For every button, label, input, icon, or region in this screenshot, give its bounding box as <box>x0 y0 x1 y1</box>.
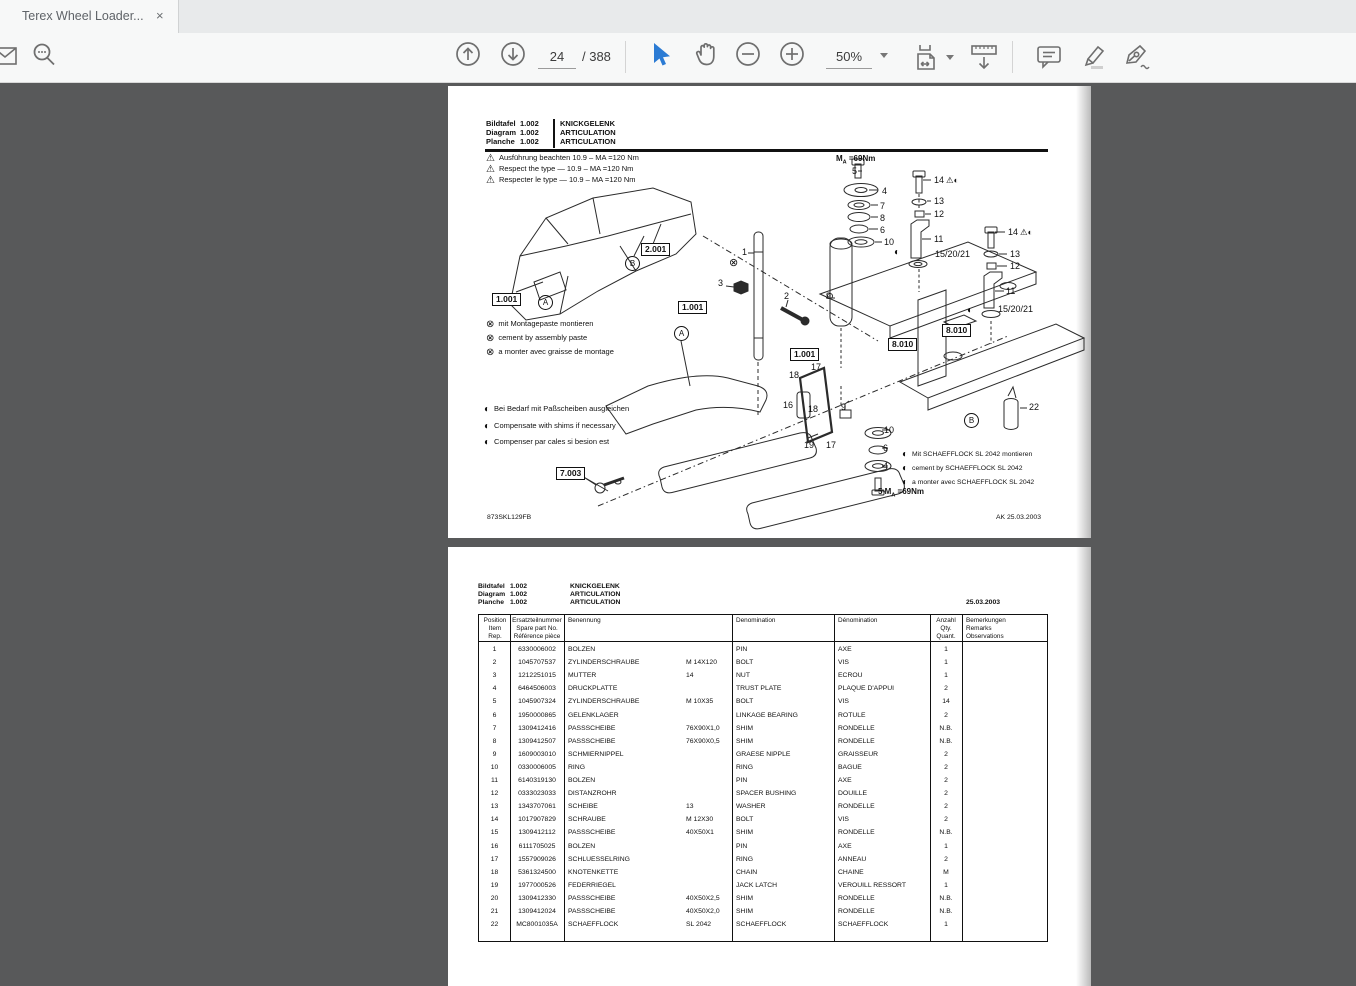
table-row: 191977000526FEDERRIEGELJACK LATCHVEROUIL… <box>479 879 1047 892</box>
diagram-callout: 18 <box>789 371 799 380</box>
diagram-ref-box: 1.001 <box>790 348 819 361</box>
table-cell: BOLZEN <box>564 840 686 853</box>
table-cell: NUT <box>732 669 838 682</box>
half-circle-icon: ◐ <box>484 437 490 448</box>
table-cell: BOLT <box>732 695 838 708</box>
table-cell: SCHMIERNIPPEL <box>564 748 686 761</box>
diagram-callout: 11 <box>1006 287 1015 296</box>
table-cell: 13 <box>479 800 510 813</box>
table-cell: 6111705025 <box>510 840 564 853</box>
half-circle-icon: ◐ <box>902 449 908 460</box>
table-cell: SCHLUESSELRING <box>564 853 686 866</box>
table-cell: 6464506003 <box>510 682 564 695</box>
diagram-ref-box: 1.001 <box>678 301 707 314</box>
table-cell: 1977000526 <box>510 879 564 892</box>
diagram-callout: 10 <box>884 238 894 247</box>
table-cell: 1557909026 <box>510 853 564 866</box>
table-cell: 1309412024 <box>510 905 564 918</box>
diagram-callout: 19 <box>804 441 814 450</box>
table-cell: RING <box>564 761 686 774</box>
table-cell: SCHAEFFLOCK <box>834 918 934 931</box>
table-cell: 1 <box>930 840 962 853</box>
diagram-callout: 1 <box>742 248 747 257</box>
table-cell: 20 <box>479 892 510 905</box>
col-header-position: PositionItemRep. <box>482 617 508 641</box>
table-cell: 2 <box>930 774 962 787</box>
table-row: 131343707061SCHEIBE13WASHERRONDELLE2 <box>479 800 1047 813</box>
table-cell: PIN <box>732 774 838 787</box>
comment-icon[interactable] <box>1034 42 1064 72</box>
table-row: 31212251015MUTTER14NUTECROU1 <box>479 669 1047 682</box>
table-cell: RONDELLE <box>834 735 934 748</box>
table-cell: 6 <box>479 709 510 722</box>
highlighter-icon[interactable] <box>1078 42 1108 72</box>
zoom-level-input[interactable]: 50% <box>826 46 872 69</box>
table-cell: VIS <box>834 656 934 669</box>
col-header-denomination: Denomination <box>736 617 775 625</box>
table-cell: PLAQUE D'APPUI <box>834 682 934 695</box>
diagram-callout: 5 <box>852 167 857 176</box>
table-cell: SL 2042 <box>682 918 736 931</box>
search-icon[interactable] <box>30 41 58 69</box>
page-number-input[interactable]: 24 <box>538 46 576 69</box>
table-cell: CHAIN <box>732 866 838 879</box>
pdf-page-2: Bildtafel Diagram Planche 1.002 1.002 1.… <box>448 547 1091 986</box>
table-cell: 4 <box>479 682 510 695</box>
diagram-ref-circle: B <box>625 256 640 271</box>
diagram-callout: ◐ <box>967 306 973 316</box>
fit-page-caret-icon[interactable] <box>946 55 954 60</box>
table-cell: 1 <box>930 669 962 682</box>
table-cell: 1 <box>930 879 962 892</box>
table-row: 120333023033DISTANZROHRSPACER BUSHINGDOU… <box>479 787 1047 800</box>
diagram-callout: 6 <box>880 226 885 235</box>
table-cell: M 14X120 <box>682 656 736 669</box>
table-cell: 1045907324 <box>510 695 564 708</box>
diagram-callout: 8 <box>880 214 885 223</box>
table-cell: PASSSCHEIBE <box>564 892 686 905</box>
table-cell: 2 <box>930 761 962 774</box>
table-cell: SHIM <box>732 735 838 748</box>
table-cell: 1309412330 <box>510 892 564 905</box>
zoom-in-button[interactable] <box>778 40 806 68</box>
parts-table: PositionItemRep. ErsatzteilnummerSpare p… <box>478 614 1048 942</box>
diagram-callout: 15/20/21 <box>998 305 1033 314</box>
diagram-callout: 4 <box>882 187 887 196</box>
table-cell: MUTTER <box>564 669 686 682</box>
table-cell: 1 <box>930 918 962 931</box>
table-row: 46464506003DRUCKPLATTETRUST PLATEPLAQUE … <box>479 682 1047 695</box>
table-cell: LINKAGE BEARING <box>732 709 838 722</box>
diagram-ref-box: 1.001 <box>492 293 521 306</box>
table-cell: PASSSCHEIBE <box>564 735 686 748</box>
table-cell: M 10X35 <box>682 695 736 708</box>
table-cell: 7 <box>479 722 510 735</box>
fit-page-icon[interactable] <box>912 41 944 73</box>
toolbar-divider <box>1012 41 1013 73</box>
table-cell: ANNEAU <box>834 853 934 866</box>
table-cell: PASSSCHEIBE <box>564 722 686 735</box>
table-cell: SCHRAUBE <box>564 813 686 826</box>
torque-label-top: MA =69Nm <box>836 154 875 166</box>
table-cell: ECROU <box>834 669 934 682</box>
table-cell: 13 <box>682 800 736 813</box>
table-cell: 19 <box>479 879 510 892</box>
table-cell: 2 <box>930 709 962 722</box>
document-tab[interactable]: Terex Wheel Loader... × <box>0 0 179 33</box>
table-row: 21045707537ZYLINDERSCHRAUBEM 14X120BOLTV… <box>479 656 1047 669</box>
diagram-callout: 17 <box>826 441 836 450</box>
table-cell: 17 <box>479 853 510 866</box>
table-row: 201309412330PASSSCHEIBE40X50X2,5SHIMROND… <box>479 892 1047 905</box>
table-cell: 76X90X0,5 <box>682 735 736 748</box>
table-cell: RONDELLE <box>834 722 934 735</box>
table-cell: 0330006005 <box>510 761 564 774</box>
zoom-out-button[interactable] <box>734 40 762 68</box>
table-cell: 9 <box>479 748 510 761</box>
diagram-callout: 10 <box>884 426 894 435</box>
panel-icon[interactable] <box>0 43 18 69</box>
table-cell: JACK LATCH <box>732 879 838 892</box>
toolbar-divider <box>625 41 626 73</box>
diagram-callout: 13 <box>934 197 944 206</box>
diagram-callout: 12 <box>934 210 944 219</box>
diagram-ref-circle: B <box>964 413 979 428</box>
table-cell: SCHAEFFLOCK <box>564 918 686 931</box>
diagram-ref-circle: A <box>674 326 689 341</box>
table-cell: SCHAEFFLOCK <box>732 918 838 931</box>
table-cell: SHIM <box>732 826 838 839</box>
page-down-button[interactable] <box>499 40 527 68</box>
table-cell: BOLZEN <box>564 774 686 787</box>
table-cell: 1017907829 <box>510 813 564 826</box>
table-cell: 11 <box>479 774 510 787</box>
table-row: 171557909026SCHLUESSELRINGRINGANNEAU2 <box>479 853 1047 866</box>
table-cell: 10 <box>479 761 510 774</box>
table-cell: 8 <box>479 735 510 748</box>
diagram-callout: 14⚠◐ <box>934 176 959 185</box>
diagram-callout: 12 <box>1010 262 1020 271</box>
diagram-callout: 7 <box>880 202 885 211</box>
diagram-ref-box: 8.010 <box>942 324 971 337</box>
page-total-label: / 388 <box>582 46 611 68</box>
table-cell: TRUST PLATE <box>732 682 838 695</box>
table-cell: 6330006002 <box>510 643 564 656</box>
diagram-callout: 17 <box>811 363 821 372</box>
table-cell: 2 <box>479 656 510 669</box>
table-cell: RING <box>732 761 838 774</box>
table-cell: SHIM <box>732 722 838 735</box>
diagram-callout: 13 <box>1010 250 1020 259</box>
table-cell: 2 <box>930 748 962 761</box>
table-cell: AXE <box>834 774 934 787</box>
col-header-part-no: ErsatzteilnummerSpare part No.Référence … <box>512 617 562 641</box>
table-cell: 2 <box>930 682 962 695</box>
fit-width-ruler-icon[interactable] <box>968 41 1000 73</box>
col-header-remarks: BemerkungenRemarksObservations <box>966 617 1006 641</box>
table-row: 166111705025BOLZENPINAXE1 <box>479 840 1047 853</box>
table-row: 141017907829SCHRAUBEM 12X30BOLTVIS2 <box>479 813 1047 826</box>
table-cell: 2 <box>930 853 962 866</box>
x-circle-icon: ⊗ <box>486 347 494 358</box>
x-circle-icon: ⊗ <box>486 333 494 344</box>
tab-close-icon[interactable]: × <box>156 8 164 23</box>
table-cell: GRAISSEUR <box>834 748 934 761</box>
table-cell: RONDELLE <box>834 905 934 918</box>
table-cell: CHAINE <box>834 866 934 879</box>
diagram-callout: 2 <box>784 292 789 301</box>
table-cell: 40X50X1 <box>682 826 736 839</box>
warning-and-glue-icons: ⚠◐ <box>946 175 959 185</box>
table-cell: 5361324500 <box>510 866 564 879</box>
diagram-callout: 16 <box>783 401 793 410</box>
diagram-ref-box: 7.003 <box>556 467 585 480</box>
table-cell: 2 <box>930 787 962 800</box>
table-cell: 14 <box>479 813 510 826</box>
pdf-viewer-window: Terex Wheel Loader... × 24 / 3 <box>0 0 1356 986</box>
table-cell: 14 <box>682 669 736 682</box>
select-tool-cursor-icon[interactable] <box>650 41 674 69</box>
table-row: 22MC8001035ASCHAEFFLOCKSL 2042SCHAEFFLOC… <box>479 918 1047 931</box>
table-cell: SHIM <box>732 892 838 905</box>
table-row: 51045907324ZYLINDERSCHRAUBEM 10X35BOLTVI… <box>479 695 1047 708</box>
table-cell: 1309412416 <box>510 722 564 735</box>
diagram-callout: 22 <box>1029 403 1039 412</box>
table-cell: 1212251015 <box>510 669 564 682</box>
signature-pen-icon[interactable] <box>1122 42 1154 72</box>
table-row: 71309412416PASSSCHEIBE76X90X1,0SHIMRONDE… <box>479 722 1047 735</box>
table-cell: 6140319130 <box>510 774 564 787</box>
table-cell: ZYLINDERSCHRAUBE <box>564 656 686 669</box>
table-cell: AXE <box>834 643 934 656</box>
table-row: 116140319130BOLZENPINAXE2 <box>479 774 1047 787</box>
table-cell: GRAESE NIPPLE <box>732 748 838 761</box>
table-row: 211309412024PASSSCHEIBE40X50X2,0SHIMROND… <box>479 905 1047 918</box>
table-cell: 2 <box>930 813 962 826</box>
table-cell: BOLZEN <box>564 643 686 656</box>
table-cell: 0333023033 <box>510 787 564 800</box>
diagram-callout: 18 <box>808 405 818 414</box>
table-cell: WASHER <box>732 800 838 813</box>
table-cell: 1309412112 <box>510 826 564 839</box>
table-cell: PIN <box>732 643 838 656</box>
table-cell: PASSSCHEIBE <box>564 905 686 918</box>
diagram-callout: 3 <box>718 279 723 288</box>
table-cell: FEDERRIEGEL <box>564 879 686 892</box>
page-edge-shading <box>1076 547 1091 986</box>
table-cell: 14 <box>930 695 962 708</box>
table-cell: ZYLINDERSCHRAUBE <box>564 695 686 708</box>
table-cell: BOLT <box>732 656 838 669</box>
diagram-callout: 14⚠◐ <box>1008 228 1033 237</box>
table-cell: N.B. <box>930 722 962 735</box>
table-cell: N.B. <box>930 892 962 905</box>
table-cell: VIS <box>834 813 934 826</box>
x-circle-icon: ⊗ <box>486 319 494 330</box>
table-cell: 12 <box>479 787 510 800</box>
page2-date: 25.03.2003 <box>966 599 1000 606</box>
table-row: 100330006005RINGRINGBAGUE2 <box>479 761 1047 774</box>
table-cell: 21 <box>479 905 510 918</box>
table-cell: 5 <box>479 695 510 708</box>
table-cell: AXE <box>834 840 934 853</box>
pdf-page-1: Bildtafel Diagram Planche 1.002 1.002 1.… <box>448 86 1091 538</box>
half-circle-icon: ◐ <box>484 404 490 415</box>
table-cell: 15 <box>479 826 510 839</box>
table-cell: 1 <box>479 643 510 656</box>
hand-tool-icon[interactable] <box>692 40 720 70</box>
table-cell: 40X50X2,0 <box>682 905 736 918</box>
col-header-benennung: Benennung <box>568 617 601 625</box>
diagram-callout: 9 <box>841 403 846 412</box>
table-row: 16330006002BOLZENPINAXE1 <box>479 643 1047 656</box>
torque-label-bottom: 5 MA =69Nm <box>878 487 924 499</box>
table-cell: DISTANZROHR <box>564 787 686 800</box>
table-cell: VIS <box>834 695 934 708</box>
table-cell: PIN <box>732 840 838 853</box>
table-cell: M 12X30 <box>682 813 736 826</box>
table-cell: 1309412507 <box>510 735 564 748</box>
table-cell: SHIM <box>732 905 838 918</box>
half-circle-icon: ◐ <box>484 421 490 432</box>
table-cell: RING <box>732 853 838 866</box>
table-cell: RONDELLE <box>834 800 934 813</box>
diagram-callout: ⊗ <box>729 258 738 269</box>
diagram-ref-box: 2.001 <box>641 243 670 256</box>
table-cell: 18 <box>479 866 510 879</box>
diagram-callout: 9 <box>826 292 831 301</box>
table-cell: 1045707537 <box>510 656 564 669</box>
table-cell: DRUCKPLATTE <box>564 682 686 695</box>
table-cell: 1950000865 <box>510 709 564 722</box>
half-circle-icon: ◐ <box>902 477 908 488</box>
table-cell: 1 <box>930 643 962 656</box>
warning-and-glue-icons: ⚠◐ <box>1020 227 1033 237</box>
diagram-ref-circle: A <box>538 295 553 310</box>
tab-bar: Terex Wheel Loader... × <box>0 0 1356 34</box>
table-cell: N.B. <box>930 826 962 839</box>
table-cell: GELENKLAGER <box>564 709 686 722</box>
table-cell: ROTULE <box>834 709 934 722</box>
table-cell: RONDELLE <box>834 826 934 839</box>
table-row: 185361324500KNOTENKETTECHAINCHAINEM <box>479 866 1047 879</box>
table-cell: SCHEIBE <box>564 800 686 813</box>
diagram-callout: 15/20/21 <box>935 250 970 259</box>
half-circle-icon: ◐ <box>902 463 908 474</box>
diagram-callout: ◐ <box>894 248 900 258</box>
revision-code: AK 25.03.2003 <box>996 514 1041 521</box>
table-cell: 76X90X1,0 <box>682 722 736 735</box>
table-cell: DOUILLE <box>834 787 934 800</box>
table-cell: N.B. <box>930 735 962 748</box>
pdf-toolbar: 24 / 388 50% <box>0 33 1356 83</box>
diagram-ref-box: 8.010 <box>888 338 917 351</box>
page-up-button[interactable] <box>454 40 482 68</box>
table-cell: N.B. <box>930 905 962 918</box>
table-cell: MC8001035A <box>510 918 564 931</box>
table-cell: RONDELLE <box>834 892 934 905</box>
table-cell: 1 <box>930 656 962 669</box>
table-cell: 3 <box>479 669 510 682</box>
table-cell: PASSSCHEIBE <box>564 826 686 839</box>
table-cell: BOLT <box>732 813 838 826</box>
table-cell: 1609003010 <box>510 748 564 761</box>
table-row: 91609003010SCHMIERNIPPELGRAESE NIPPLEGRA… <box>479 748 1047 761</box>
zoom-caret-icon[interactable] <box>880 53 888 58</box>
table-cell: 22 <box>479 918 510 931</box>
table-row: 81309412507PASSSCHEIBE76X90X0,5SHIMRONDE… <box>479 735 1047 748</box>
table-cell: SPACER BUSHING <box>732 787 838 800</box>
col-header-denomination-fr: Dénomination <box>838 617 877 625</box>
table-row: 61950000865GELENKLAGERLINKAGE BEARINGROT… <box>479 709 1047 722</box>
table-row: 151309412112PASSSCHEIBE40X50X1SHIMRONDEL… <box>479 826 1047 839</box>
table-cell: BAGUE <box>834 761 934 774</box>
table-cell: 40X50X2,5 <box>682 892 736 905</box>
table-cell: VEROUILL RESSORT <box>834 879 934 892</box>
document-code: 873SKL129FB <box>487 514 531 521</box>
table-cell: 16 <box>479 840 510 853</box>
diagram-callout: 6 <box>883 444 888 453</box>
table-cell: 1343707061 <box>510 800 564 813</box>
col-header-qty: AnzahlQty.Quant. <box>932 617 960 641</box>
tab-title: Terex Wheel Loader... <box>22 9 144 23</box>
table-cell: KNOTENKETTE <box>564 866 686 879</box>
table-cell: 2 <box>930 800 962 813</box>
diagram-callout: 11 <box>934 235 943 244</box>
table-cell: M <box>930 866 962 879</box>
diagram-callout: 4 <box>883 462 888 471</box>
